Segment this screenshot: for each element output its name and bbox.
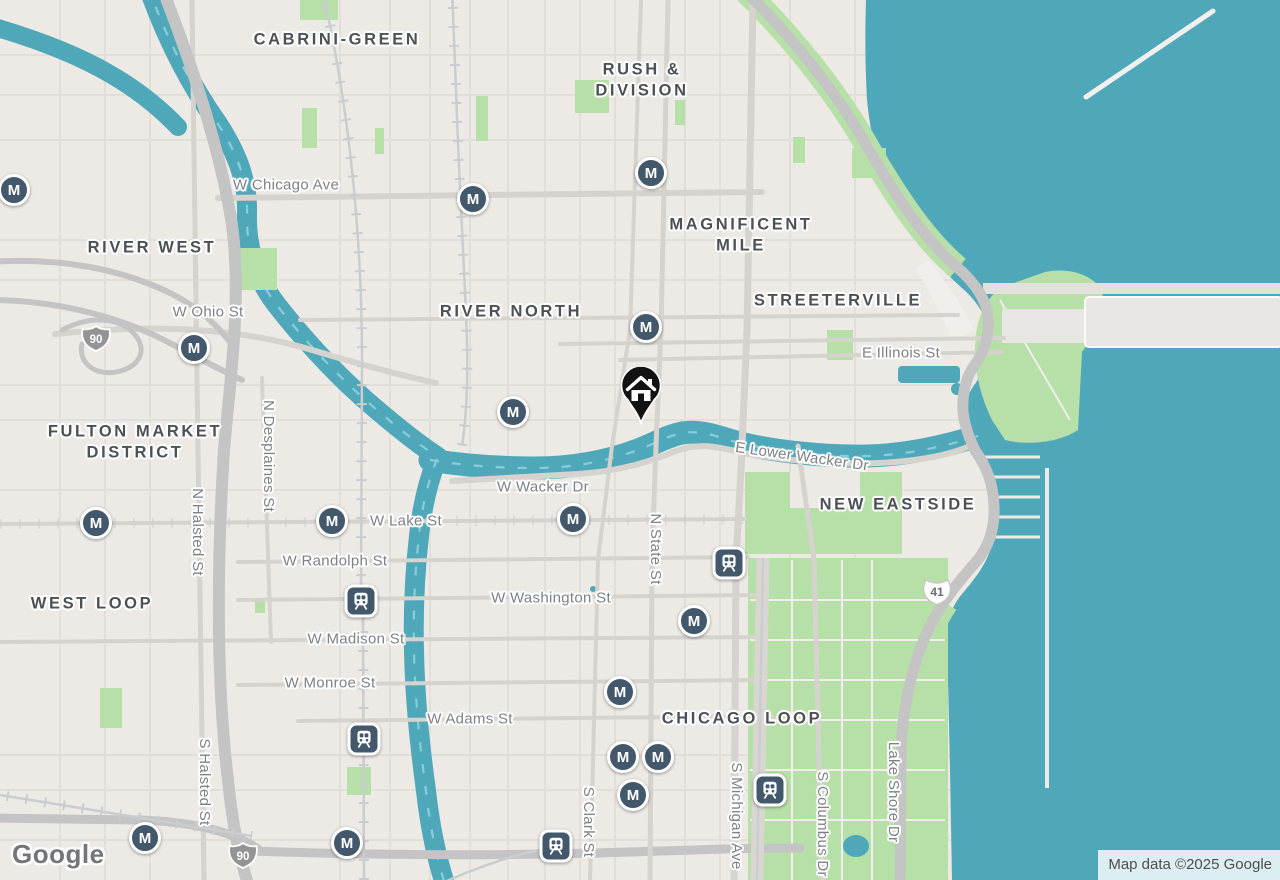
train-icon bbox=[719, 553, 740, 574]
map-canvas[interactable]: CABRINI-GREENRUSH & DIVISIONRIVER WESTMA… bbox=[0, 0, 1280, 880]
train-station-marker[interactable] bbox=[540, 830, 573, 863]
train-icon bbox=[760, 780, 781, 801]
metro-station-marker[interactable]: M bbox=[557, 503, 589, 535]
train-station-marker[interactable] bbox=[754, 774, 787, 807]
metro-station-marker[interactable]: M bbox=[457, 183, 489, 215]
metro-station-marker[interactable]: M bbox=[630, 311, 662, 343]
metro-station-marker[interactable]: M bbox=[316, 505, 348, 537]
metro-station-marker[interactable]: M bbox=[178, 332, 210, 364]
train-station-marker[interactable] bbox=[345, 585, 378, 618]
park-pond bbox=[843, 835, 869, 857]
metro-station-marker[interactable]: M bbox=[607, 741, 639, 773]
metro-station-marker[interactable]: M bbox=[678, 605, 710, 637]
ogden-slip bbox=[898, 366, 960, 383]
water-dot bbox=[590, 586, 596, 592]
metro-station-marker[interactable]: M bbox=[617, 779, 649, 811]
train-icon bbox=[351, 591, 372, 612]
train-icon bbox=[354, 729, 375, 750]
metro-station-marker[interactable]: M bbox=[604, 676, 636, 708]
metro-station-marker[interactable]: M bbox=[642, 741, 674, 773]
metro-station-marker[interactable]: M bbox=[129, 822, 161, 854]
metro-station-marker[interactable]: M bbox=[331, 827, 363, 859]
basemap bbox=[0, 0, 1280, 880]
home-pin-marker[interactable] bbox=[618, 367, 664, 425]
metro-station-marker[interactable]: M bbox=[635, 157, 667, 189]
metro-station-marker[interactable]: M bbox=[497, 396, 529, 428]
train-icon bbox=[546, 836, 567, 857]
metro-station-marker[interactable]: M bbox=[80, 507, 112, 539]
google-logo[interactable]: Google bbox=[12, 839, 105, 870]
train-station-marker[interactable] bbox=[348, 723, 381, 756]
map-attribution: Map data ©2025 Google bbox=[1098, 850, 1280, 880]
train-station-marker[interactable] bbox=[713, 547, 746, 580]
